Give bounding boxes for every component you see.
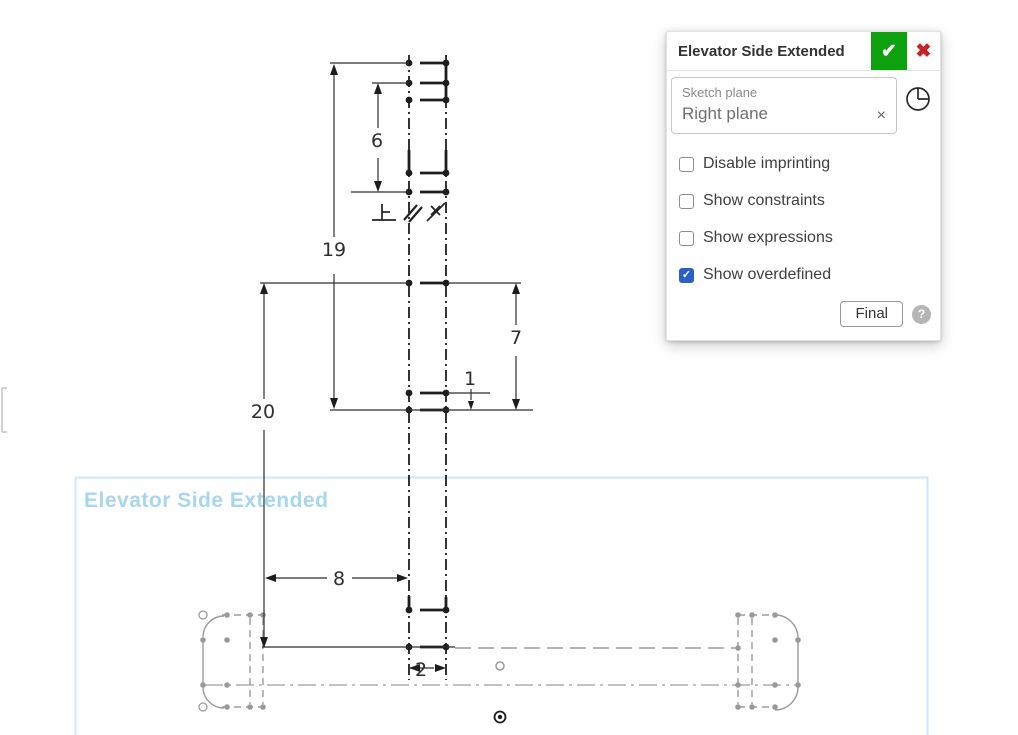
pie-clock-icon[interactable]	[905, 86, 931, 112]
checkbox[interactable]: ✓	[679, 157, 694, 172]
checkbox[interactable]: ✓	[679, 268, 694, 283]
dialog-header: Elevator Side Extended ✔ ✖	[667, 32, 940, 71]
dim-8: 8	[333, 568, 345, 590]
perpendicular-icon	[372, 204, 396, 220]
dim-20: 20	[251, 401, 275, 423]
solid-edges[interactable]	[409, 63, 448, 647]
parallel-icon	[404, 205, 422, 222]
dim-2: 2	[415, 659, 427, 681]
check-icon: ✔	[881, 40, 897, 63]
checkbox[interactable]: ✓	[679, 231, 694, 246]
dimension-lines[interactable]	[260, 63, 533, 668]
checkbox-label: Show constraints	[703, 192, 825, 210]
checkbox[interactable]: ✓	[679, 194, 694, 209]
gray-geometry[interactable]	[203, 615, 798, 710]
sketch-region-label[interactable]: Elevator Side Extended	[84, 489, 328, 512]
checkbox-row-show-constraints[interactable]: ✓ Show constraints	[679, 192, 928, 210]
dimension-arrowheads	[260, 64, 520, 672]
pierce-icon	[427, 203, 445, 221]
origin-icon[interactable]	[495, 712, 506, 723]
dim-6: 6	[371, 130, 383, 152]
checkbox-label: Disable imprinting	[703, 155, 830, 173]
sketch-plane-field[interactable]: Sketch plane Right plane ×	[671, 77, 897, 134]
app-root: { "dialog": { "title": "Elevator Side Ex…	[0, 0, 1018, 735]
checkbox-row-show-overdefined[interactable]: ✓ Show overdefined	[679, 266, 928, 284]
confirm-button[interactable]: ✔	[871, 32, 907, 70]
sketch-plane-value: Right plane	[682, 104, 886, 124]
checkbox-label: Show overdefined	[703, 266, 831, 284]
checkbox-row-show-expressions[interactable]: ✓ Show expressions	[679, 229, 928, 247]
sketch-region-box	[76, 478, 928, 735]
construction-lines[interactable]	[409, 55, 446, 680]
sketch-plane-label: Sketch plane	[682, 85, 886, 100]
sketch-feature-dialog: Elevator Side Extended ✔ ✖ Sketch plane …	[666, 31, 941, 341]
help-icon[interactable]: ?	[912, 305, 931, 324]
gray-vertex-dots[interactable]	[200, 612, 801, 710]
checkmark-icon: ✓	[682, 270, 691, 281]
left-panel-edge	[2, 388, 7, 432]
final-button[interactable]: Final	[840, 301, 903, 327]
dialog-title: Elevator Side Extended	[667, 32, 871, 70]
vertex-dots[interactable]	[406, 60, 450, 651]
close-icon: ✖	[916, 40, 932, 63]
sketch-plane-row: Sketch plane Right plane ×	[667, 71, 940, 134]
dim-1: 1	[464, 368, 476, 390]
dim-7: 7	[510, 327, 522, 349]
checkbox-list: ✓ Disable imprinting ✓ Show constraints …	[667, 134, 940, 284]
clear-selection-icon[interactable]: ×	[877, 108, 886, 124]
dim-19: 19	[322, 239, 346, 261]
small-circle	[496, 662, 504, 670]
cancel-button[interactable]: ✖	[907, 32, 940, 70]
checkbox-label: Show expressions	[703, 229, 833, 247]
dialog-footer: Final ?	[667, 284, 940, 340]
checkbox-row-disable-imprinting[interactable]: ✓ Disable imprinting	[679, 155, 928, 173]
